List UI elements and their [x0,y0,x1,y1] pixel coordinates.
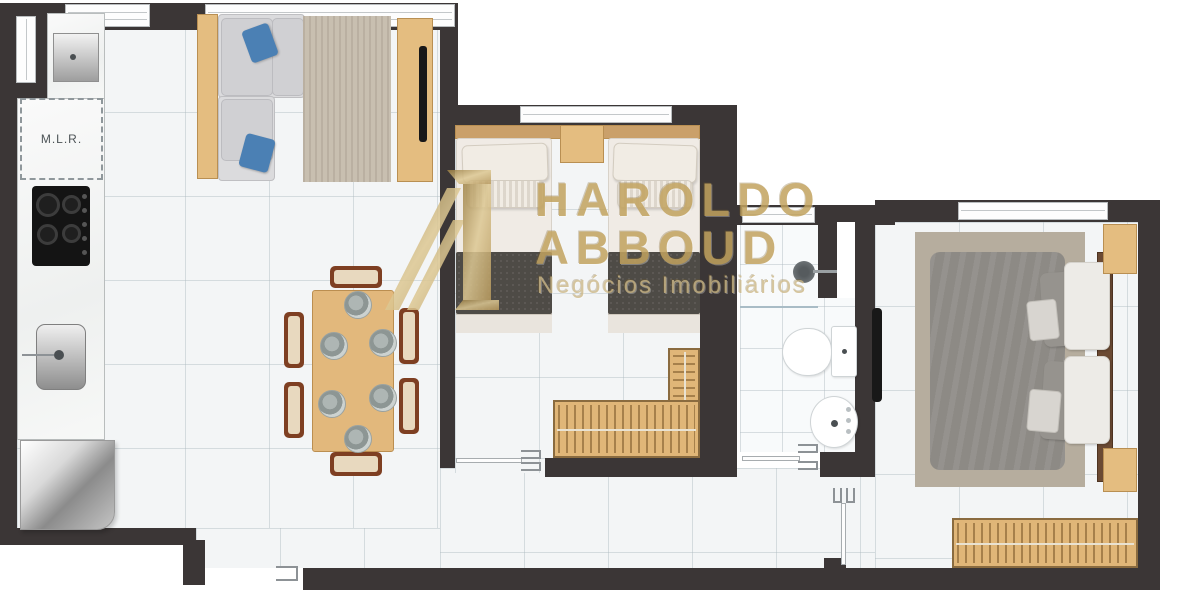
sofa-side-panel [197,14,218,179]
bedroom2-door-mark [521,462,541,471]
plate [344,425,372,453]
blanket [456,252,552,314]
wall-shower-stub [818,225,837,298]
window-bathroom [742,207,815,223]
fridge [20,440,115,530]
toilet-cistern [831,326,857,377]
window-bedroom2 [520,106,672,123]
plate [318,390,346,418]
sheet-fold [608,314,700,333]
entry-door-mark [276,566,298,581]
dining-chair [330,266,382,288]
plate [369,329,397,357]
cushion [1026,389,1062,434]
dining-chair [284,382,304,438]
dining-chair [399,308,419,364]
pillow [1064,356,1110,444]
wall-entry-step [183,540,205,585]
kitchen-sink-cabinet [53,33,99,82]
floor-hall [440,468,875,568]
cooktop [32,186,90,266]
kitchen-faucet [54,350,64,360]
bathroom-door-mark [798,444,818,453]
pillow [466,180,544,208]
plate [344,291,372,319]
dining-table [312,290,394,452]
floor-entry [196,528,455,568]
master-nightstand-top [1103,224,1137,274]
kitchen-faucet-arm [22,354,54,356]
sheet-fold [456,314,552,333]
bedroom2-nightstand [560,125,604,163]
cushion [1026,299,1060,342]
plate [320,332,348,360]
tv-console [397,18,433,182]
bedroom2-door-mark [521,450,541,459]
pillow [612,143,697,184]
window-master [958,202,1108,220]
dining-chair [284,312,304,368]
wall [1138,200,1160,590]
suite-door-mark [846,488,855,503]
shower-glass [740,306,818,308]
wall [700,105,737,473]
tv [419,46,427,142]
dining-chair [330,452,382,476]
wall [0,528,196,545]
wall [0,100,17,545]
wardrobe-bedroom2-horizontal [553,400,700,458]
shaft-niche [837,222,855,298]
wall [545,458,737,477]
laundry-area-box: M.L.R. [20,98,103,180]
living-rug [303,16,391,182]
window-kitchen-side [16,16,36,83]
bedroom2-door-leaf [456,458,522,463]
dining-chair [399,378,419,434]
suite-door-leaf [841,503,846,565]
pillow [1064,262,1110,350]
bathroom-door-mark [798,461,818,470]
wall [440,125,455,468]
master-nightstand-bottom [1103,448,1137,492]
master-wardrobe [952,518,1138,568]
blanket [608,252,700,314]
pillow [461,143,548,184]
plate [369,384,397,412]
wall [303,568,1160,590]
pillow [617,180,693,208]
toilet-bowl [782,328,832,376]
laundry-area-label: M.L.R. [41,132,82,146]
floor-plan: M.L.R. [0,0,1200,592]
shower-head [793,261,815,283]
suite-door-mark [833,488,842,503]
wall-tv [872,308,882,402]
sofa-cushion [272,18,304,96]
wall [820,452,875,477]
bathroom-door-leaf [742,456,800,461]
washbasin [810,396,858,448]
shower-arm [813,270,837,273]
